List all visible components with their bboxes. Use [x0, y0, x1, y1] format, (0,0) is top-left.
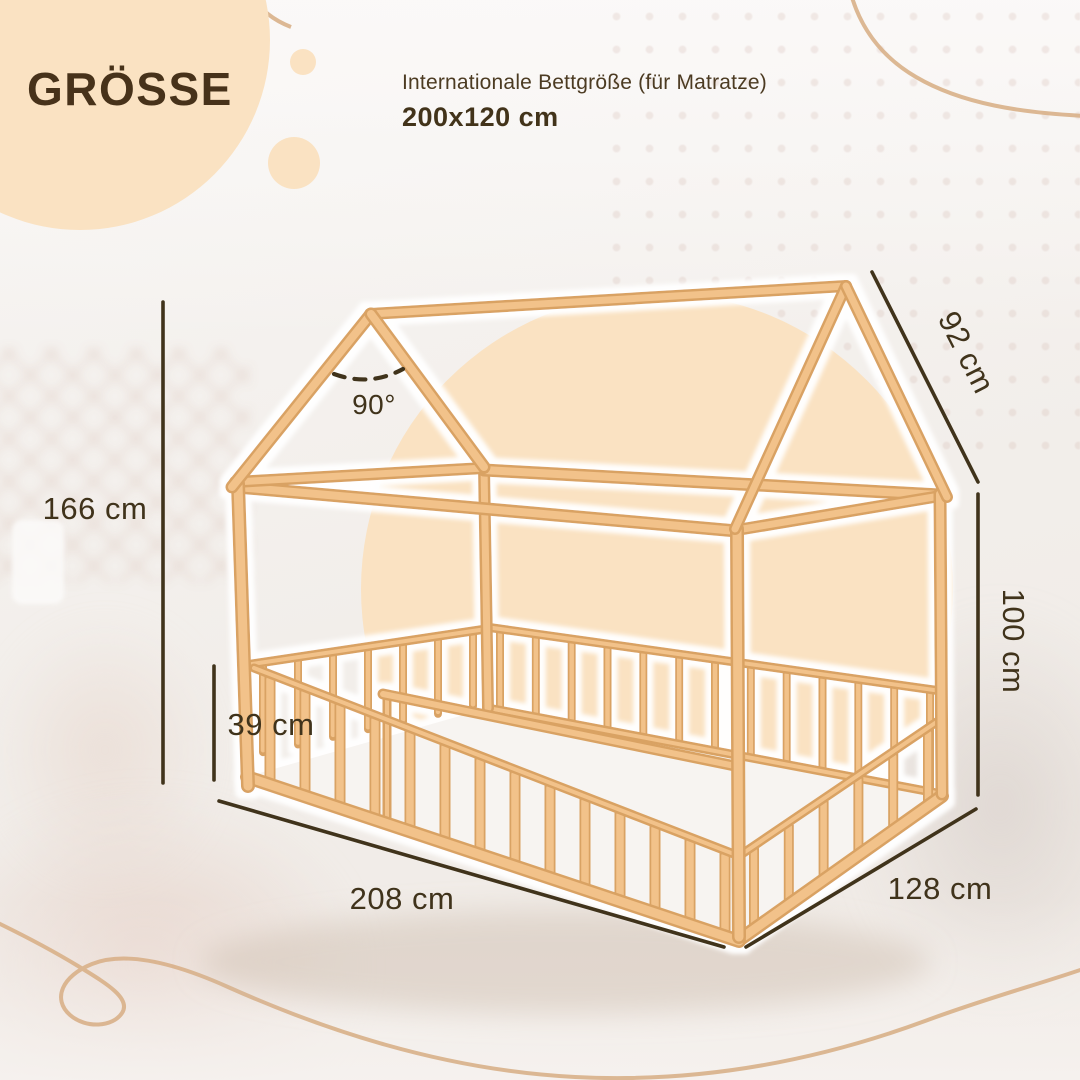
mattress-size-text: 200x120 cm [402, 102, 767, 133]
label-roof-angle: 90° [352, 389, 396, 420]
label-roof-slope: 92 cm [931, 306, 1002, 399]
bed-diagram-canvas: 166 cm 39 cm 92 cm 100 cm 208 cm 128 cm … [0, 0, 1080, 1080]
accent-dot-medium [268, 137, 320, 189]
roof-angle-arc [334, 369, 403, 379]
accent-dot-small [290, 49, 316, 75]
subtitle-text: Internationale Bettgröße (für Matratze) [402, 71, 767, 95]
label-bed-length: 208 cm [350, 881, 455, 916]
label-rail-height: 39 cm [228, 707, 315, 742]
page-title: GRÖSSE [27, 62, 233, 116]
size-infographic: 166 cm 39 cm 92 cm 100 cm 208 cm 128 cm … [0, 0, 1080, 1080]
subtitle-block: Internationale Bettgröße (für Matratze) … [402, 71, 767, 133]
label-total-height: 166 cm [43, 491, 148, 526]
bed-shadow [200, 910, 930, 1014]
label-wall-height: 100 cm [996, 589, 1031, 694]
decorative-swirl-top-right [851, 0, 1080, 116]
label-bed-width: 128 cm [888, 871, 993, 906]
